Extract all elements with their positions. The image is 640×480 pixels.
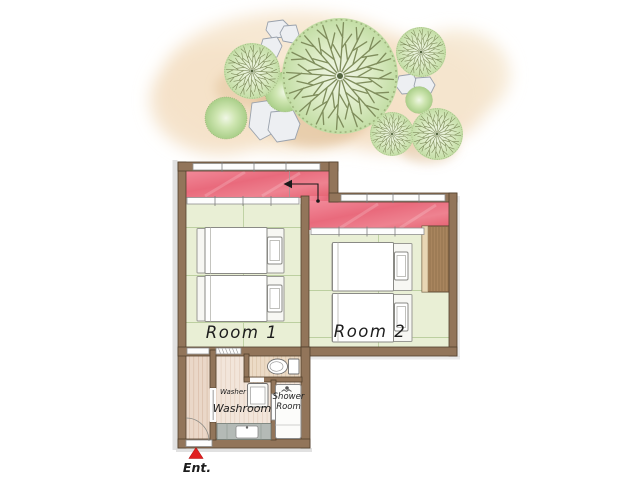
wall xyxy=(301,196,309,347)
floor-plan xyxy=(173,160,461,459)
tree-icon xyxy=(396,27,446,77)
round-tree-icon xyxy=(205,97,247,139)
bed xyxy=(332,243,412,292)
garden xyxy=(150,12,510,164)
wall xyxy=(210,350,216,388)
tree-icon xyxy=(411,108,463,160)
bed xyxy=(197,276,284,322)
doorway xyxy=(250,378,264,383)
pillow xyxy=(395,252,409,280)
floor-plan-page: Room 1 Room 2 Washer Washroom Shower Roo… xyxy=(0,0,640,480)
wall xyxy=(449,193,457,356)
tree-icon xyxy=(224,43,280,99)
bed xyxy=(197,228,284,274)
washer-icon xyxy=(248,384,269,408)
shower-door xyxy=(272,394,276,420)
wall xyxy=(301,347,310,448)
bed xyxy=(332,294,412,343)
entrance-door xyxy=(186,440,212,447)
wall xyxy=(244,354,249,380)
toilet-icon xyxy=(268,359,300,374)
closet xyxy=(422,226,452,292)
shower-floor xyxy=(276,385,302,439)
floor-plan-drawing xyxy=(0,0,640,480)
shower-room xyxy=(276,385,302,439)
window xyxy=(193,164,320,171)
vanity-sink xyxy=(217,424,271,440)
window xyxy=(311,228,424,235)
tree-icon xyxy=(282,18,398,134)
pillow xyxy=(395,303,409,331)
entry-corridor-floor xyxy=(185,352,212,441)
wall xyxy=(178,162,186,448)
wall xyxy=(210,422,216,440)
veranda-floor xyxy=(309,201,450,229)
door-leaf xyxy=(213,390,215,420)
sliding-door xyxy=(187,348,209,354)
